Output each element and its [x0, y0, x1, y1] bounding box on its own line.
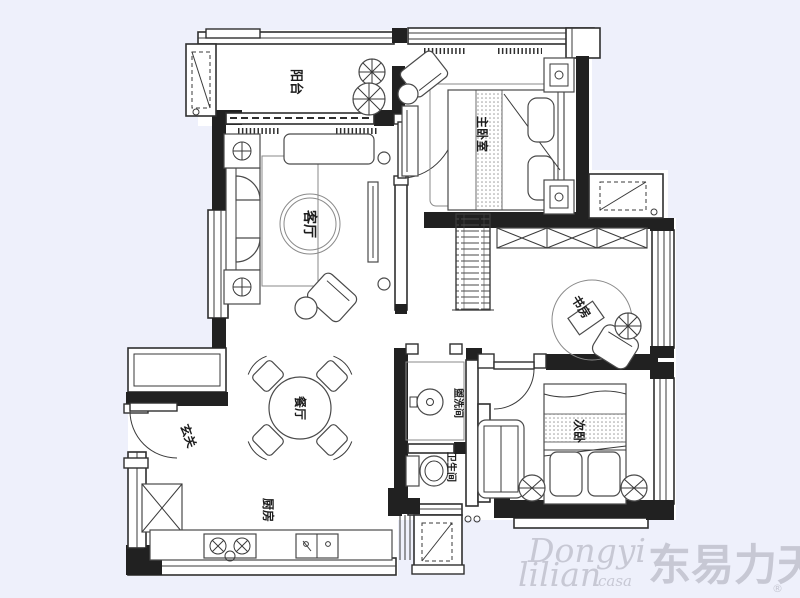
room-label-master-bedroom: 主卧室 [475, 116, 490, 152]
toilet-icon [406, 456, 448, 486]
plant-icon [353, 83, 385, 115]
ac-outdoor-unit-icon [589, 174, 663, 218]
plant-icon [359, 59, 385, 85]
floor-plan-drawing: 阳台 主卧室 客厅 书房 餐厅 玄关 厨房 盥洗间 卫生间 次卧 Dongyi … [0, 0, 800, 598]
watermark-registered-mark: ® [772, 582, 783, 595]
bay-window-study [652, 230, 674, 348]
nightstand [544, 180, 574, 214]
living-east-wall [395, 180, 407, 310]
room-label-washroom: 盥洗间 [452, 388, 465, 418]
wardrobe [478, 420, 524, 498]
coffee-table [284, 134, 374, 164]
watermark-script-line2: lilian [518, 555, 601, 594]
side-table [295, 297, 317, 319]
bay-window-sw [128, 348, 226, 392]
bathroom-east-wall [466, 360, 478, 506]
stove-icon [204, 534, 256, 561]
bedside-stool [621, 475, 647, 501]
room-label-balcony: 阳台 [288, 69, 304, 95]
room-label-bathroom: 卫生间 [445, 452, 458, 482]
room-label-kitchen: 厨房 [261, 498, 276, 522]
room-label-dining: 餐厅 [293, 396, 308, 420]
sofa-end-table [224, 134, 260, 168]
kitchen-counter [150, 530, 392, 560]
room-label-living-room: 客厅 [301, 209, 318, 238]
bedside-stool [519, 475, 545, 501]
watermark: Dongyi lilian casa 东易力天 ® [518, 531, 800, 595]
sofa-end-table [224, 270, 260, 304]
double-bed [544, 384, 626, 504]
bay-window-bedroom2 [654, 378, 674, 504]
bookshelf [452, 214, 494, 310]
side-table [398, 84, 418, 104]
room-label-second-bedroom: 次卧 [572, 419, 587, 443]
plant-icon [615, 313, 641, 339]
floor-plan-canvas: 阳台 主卧室 客厅 书房 餐厅 玄关 厨房 盥洗间 卫生间 次卧 Dongyi … [0, 0, 800, 598]
kitchen-sink-icon [296, 534, 338, 558]
storage-cabinet [497, 228, 647, 248]
ac-outdoor-unit-icon [412, 515, 480, 574]
ac-outdoor-unit-icon [186, 44, 216, 116]
watermark-script-suffix: casa [598, 572, 632, 590]
nightstand [544, 58, 574, 92]
dresser [402, 106, 418, 176]
